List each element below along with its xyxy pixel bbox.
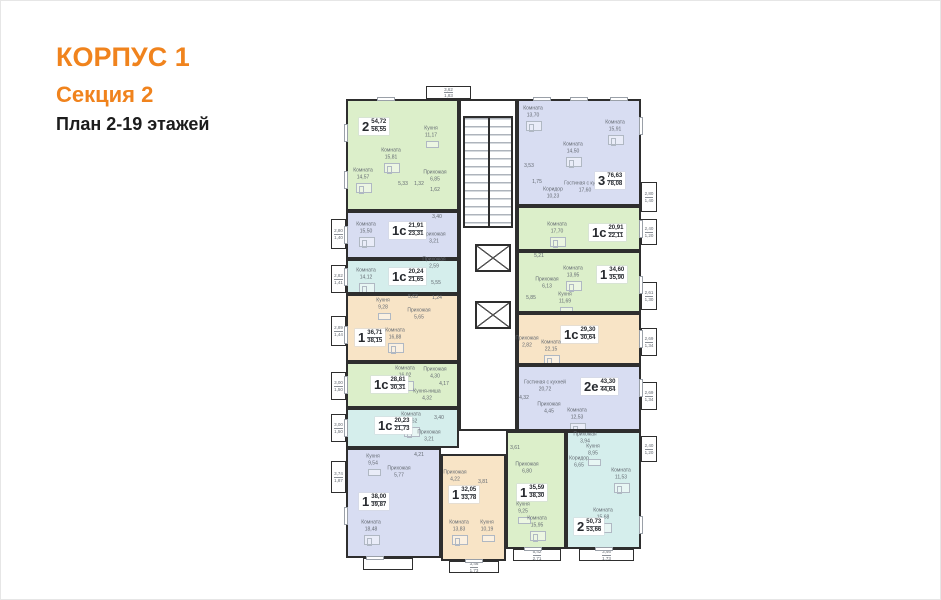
window-icon xyxy=(377,97,395,101)
window-icon xyxy=(570,97,588,101)
furniture-icon xyxy=(482,535,495,542)
window-icon xyxy=(639,117,643,135)
apartment-badge: 1с21,9123,31 xyxy=(389,222,426,239)
apartment-area-total: 21,65 xyxy=(408,277,423,284)
apartment-area-main: 43,30 xyxy=(600,379,615,387)
elevator-icon xyxy=(475,301,511,329)
furniture-icon xyxy=(356,183,372,193)
apartment-area-main: 32,05 xyxy=(461,487,476,495)
apartment-area-total: 56,55 xyxy=(371,127,386,134)
apartment-area-total: 38,30 xyxy=(529,493,544,500)
furniture-icon xyxy=(359,237,375,247)
furniture-icon xyxy=(388,343,404,353)
apartment-area-total: 39,87 xyxy=(371,502,386,509)
room-label: Прихожая5,65 xyxy=(407,308,430,321)
room-label: Комната15,50 xyxy=(356,222,376,235)
floors-subtitle: План 2-19 этажей xyxy=(56,113,209,136)
area-label: 4,32 xyxy=(519,395,529,402)
window-icon xyxy=(344,507,348,525)
apartment-area-main: 20,24 xyxy=(408,269,423,277)
apartment-area-main: 28,81 xyxy=(390,377,405,385)
apartment-badge: 134,6035,90 xyxy=(597,266,627,283)
area-label: 3,81 xyxy=(478,479,488,486)
room-label: Комната15,95 xyxy=(527,516,547,529)
apartment-number: 1 xyxy=(358,330,365,345)
room-label: Комната18,48 xyxy=(361,520,381,533)
area-label: 3,61 xyxy=(510,445,520,452)
apartment-area-total: 23,31 xyxy=(408,231,423,238)
balcony: 3,621,83 xyxy=(426,86,471,99)
room-label: Коридор10,23 xyxy=(543,187,563,200)
furniture-icon xyxy=(566,281,582,291)
apartment-area-main: 34,60 xyxy=(609,267,624,275)
furniture-icon xyxy=(384,163,400,173)
area-label: 5,33 xyxy=(398,181,408,188)
room-label: Комната13,83 xyxy=(449,520,469,533)
apartment-number: 1с xyxy=(592,225,606,240)
room-label: Комната14,12 xyxy=(356,268,376,281)
area-label: 5,63 xyxy=(408,294,418,301)
window-icon xyxy=(639,516,643,534)
window-icon xyxy=(366,556,384,560)
furniture-icon xyxy=(614,483,630,493)
elevator-icon xyxy=(475,244,511,272)
room-label: Прихожая2,82 xyxy=(515,336,538,349)
apartment-badge: 135,5938,30 xyxy=(517,484,547,501)
apartment-badge: 136,7138,15 xyxy=(355,329,385,346)
room-label: Комната13,95 xyxy=(563,266,583,279)
window-icon xyxy=(344,326,348,344)
room-label: Кухня11,17 xyxy=(424,126,437,139)
room-label: Прихожая6,13 xyxy=(535,277,558,290)
apartment-area-main: 76,63 xyxy=(607,173,622,181)
floor-plan-page: КОРПУС 1 Секция 2 План 2-19 этажей 254,7… xyxy=(0,0,941,600)
room-label: Комната15,91 xyxy=(605,120,625,133)
floor-plan: 254,7256,55Комната15,81Комната14,57Кухня… xyxy=(331,86,671,586)
room-label: Прихожая4,30 xyxy=(423,367,446,380)
apartment-number: 1с xyxy=(392,223,406,238)
furniture-icon xyxy=(550,237,566,247)
area-label: 5,21 xyxy=(534,253,544,260)
apartment-area-total: 30,64 xyxy=(580,335,595,342)
furniture-icon xyxy=(368,469,381,476)
area-label: 4,17 xyxy=(439,381,449,388)
furniture-icon xyxy=(566,157,582,167)
furniture-icon xyxy=(452,535,468,545)
apartment-badge: 132,0533,78 xyxy=(449,486,479,503)
apartment-badge: 1с20,2421,65 xyxy=(389,268,426,285)
apartment-number: 1с xyxy=(392,269,406,284)
apartment-unit-2-rooms-top[interactable] xyxy=(346,99,459,211)
furniture-icon xyxy=(570,423,586,431)
room-label: Комната22,15 xyxy=(541,340,561,353)
window-icon xyxy=(344,419,348,437)
room-label: Прихожая4,22 xyxy=(443,470,466,483)
room-label: Кухня11,69 xyxy=(558,292,571,305)
apartment-area-main: 38,00 xyxy=(371,494,386,502)
apartment-area-total: 33,78 xyxy=(461,495,476,502)
area-label: 1,24 xyxy=(432,295,442,302)
window-icon xyxy=(639,379,643,397)
stairs-icon xyxy=(463,116,513,228)
window-icon xyxy=(524,547,542,551)
room-label: Прихожая6,85 xyxy=(423,170,446,183)
furniture-icon xyxy=(378,313,391,320)
apartment-area-total: 38,15 xyxy=(367,338,382,345)
apartment-badge: 2е43,3044,64 xyxy=(581,378,618,395)
apartment-number: 1 xyxy=(520,485,527,500)
balcony: 3,741,87 xyxy=(331,461,346,493)
furniture-icon xyxy=(526,121,542,131)
furniture-icon xyxy=(359,283,375,293)
apartment-area-main: 50,73 xyxy=(586,519,601,527)
window-icon xyxy=(344,268,348,286)
area-label: 1,75 xyxy=(532,179,542,186)
room-label: Кухня9,54 xyxy=(366,454,379,467)
apartment-area-main: 36,71 xyxy=(367,330,382,338)
apartment-badge: 376,6378,08 xyxy=(595,172,625,189)
room-label: Комната11,53 xyxy=(611,468,631,481)
apartment-number: 1 xyxy=(452,487,459,502)
apartment-badge: 1с20,2321,73 xyxy=(375,417,412,434)
apartment-number: 1с xyxy=(378,418,392,433)
balcony: 2,401,20 xyxy=(641,219,657,245)
apartment-area-main: 35,59 xyxy=(529,485,544,493)
apartment-area-main: 54,72 xyxy=(371,119,386,127)
window-icon xyxy=(639,220,643,238)
apartment-area-main: 29,30 xyxy=(580,327,595,335)
window-icon xyxy=(344,171,348,189)
apartment-area-main: 20,23 xyxy=(394,418,409,426)
apartment-area-main: 20,91 xyxy=(608,225,623,233)
apartment-number: 2 xyxy=(577,519,584,534)
apartment-area-total: 21,73 xyxy=(394,426,409,433)
window-icon xyxy=(344,376,348,394)
area-label: 3,40 xyxy=(432,214,442,221)
apartment-unit-2e[interactable] xyxy=(517,365,641,431)
section-title: Секция 2 xyxy=(56,81,209,109)
area-label: 3,53 xyxy=(524,163,534,170)
furniture-icon xyxy=(608,135,624,145)
room-label: Кухня9,25 xyxy=(516,502,529,515)
apartment-number: 2 xyxy=(362,119,369,134)
apartment-area-total: 53,66 xyxy=(586,527,601,534)
apartment-area-total: 22,11 xyxy=(608,233,623,240)
room-label: Прихожая5,77 xyxy=(387,466,410,479)
apartment-area-main: 21,91 xyxy=(408,223,423,231)
window-icon xyxy=(344,124,348,142)
apartment-badge: 1с28,8130,31 xyxy=(371,376,408,393)
room-label: Прихожая3,21 xyxy=(417,430,440,443)
apartment-area-total: 44,64 xyxy=(600,387,615,394)
area-label: 1,62 xyxy=(430,187,440,194)
building-title: КОРПУС 1 xyxy=(56,41,209,75)
furniture-icon xyxy=(364,535,380,545)
room-label: Комната17,70 xyxy=(547,222,567,235)
room-label: Комната13,70 xyxy=(523,106,543,119)
area-label: 5,55 xyxy=(431,280,441,287)
room-label: Кухня-ниша4,32 xyxy=(413,389,440,402)
apartment-area-total: 30,31 xyxy=(390,385,405,392)
furniture-icon xyxy=(530,531,546,541)
area-label: 4,21 xyxy=(414,452,424,459)
furniture-icon xyxy=(588,459,601,466)
window-icon xyxy=(344,226,348,244)
room-label: Комната15,81 xyxy=(381,148,401,161)
room-label: Прихожая4,45 xyxy=(537,402,560,415)
apartment-number: 1с xyxy=(374,377,388,392)
balcony: 2,691,34 xyxy=(641,382,657,410)
area-label: 3,40 xyxy=(434,415,444,422)
window-icon xyxy=(465,559,483,563)
room-label: Комната14,57 xyxy=(353,168,373,181)
room-label: Гостиная с кухней20,72 xyxy=(524,380,566,393)
room-label: Прихожая6,80 xyxy=(515,462,538,475)
window-icon xyxy=(533,97,551,101)
apartment-badge: 250,7353,66 xyxy=(574,518,604,535)
apartment-number: 2е xyxy=(584,379,598,394)
room-label: Коридор6,65 xyxy=(569,456,589,469)
window-icon xyxy=(639,330,643,348)
room-label: Комната14,50 xyxy=(563,142,583,155)
apartment-number: 3 xyxy=(598,173,605,188)
balcony: 2,401,20 xyxy=(641,436,657,462)
balcony: 2,611,30 xyxy=(641,282,657,310)
window-icon xyxy=(610,97,628,101)
apartment-number: 1 xyxy=(362,494,369,509)
window-icon xyxy=(639,276,643,294)
room-label: Кухня10,19 xyxy=(480,520,493,533)
area-label: 1,32 xyxy=(414,181,424,188)
apartment-number: 1 xyxy=(600,267,607,282)
balcony: 2,691,34 xyxy=(641,328,657,356)
room-label: Кухня9,28 xyxy=(376,298,389,311)
room-label: Комната16,88 xyxy=(385,328,405,341)
apartment-badge: 1с29,3030,64 xyxy=(561,326,598,343)
apartment-badge: 1с20,9122,11 xyxy=(589,224,626,241)
furniture-icon xyxy=(544,355,560,365)
page-header: КОРПУС 1 Секция 2 План 2-19 этажей xyxy=(56,41,209,136)
apartment-area-total: 78,08 xyxy=(607,181,622,188)
apartment-area-total: 35,90 xyxy=(609,275,624,282)
furniture-icon xyxy=(560,307,573,313)
apartment-number: 1с xyxy=(564,327,578,342)
furniture-icon xyxy=(426,141,439,148)
apartment-badge: 254,7256,55 xyxy=(359,118,389,135)
apartment-badge: 138,0039,87 xyxy=(359,493,389,510)
balcony: 2,801,40 xyxy=(641,182,657,212)
area-label: 5,85 xyxy=(526,295,536,302)
window-icon xyxy=(595,547,613,551)
room-label: Комната12,53 xyxy=(567,408,587,421)
